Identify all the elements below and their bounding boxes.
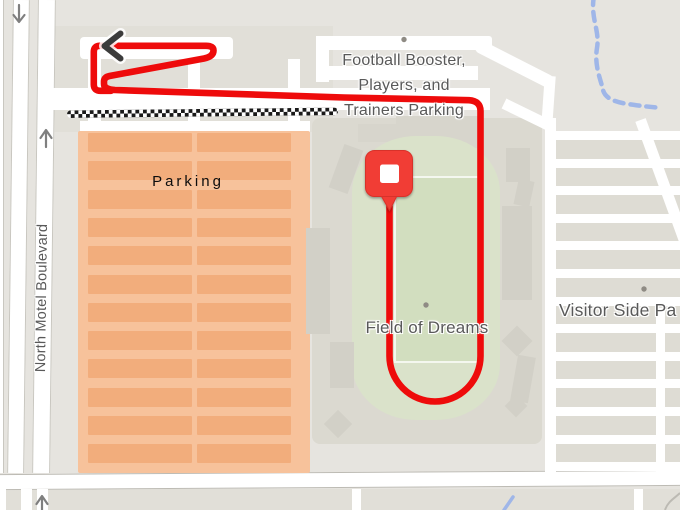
parking-row xyxy=(88,444,192,463)
road-gap xyxy=(21,489,32,510)
parking-row xyxy=(197,303,291,322)
parking-row xyxy=(88,246,192,265)
parking-row xyxy=(88,388,192,407)
visitor-lane-band xyxy=(548,241,680,250)
visitor-parking-label: Visitor Side Pa xyxy=(559,300,676,321)
field-of-dreams-label: Field of Dreams xyxy=(347,318,507,338)
football-parking-label-line2: Players, and xyxy=(294,73,514,98)
parking-label: Parking xyxy=(118,173,258,190)
road-aisle-v1 xyxy=(88,37,101,132)
parking-row xyxy=(197,246,291,265)
marker-square-icon xyxy=(380,165,399,184)
parking-row xyxy=(88,275,192,294)
parking-row xyxy=(197,275,291,294)
road-gap xyxy=(352,489,361,510)
parking-row xyxy=(197,359,291,378)
street-name-label: North Motel Boulevard xyxy=(32,188,51,408)
football-parking-label: Football Booster, Players, and Trainers … xyxy=(294,48,514,123)
stand-southwest xyxy=(330,342,354,388)
parking-row xyxy=(88,218,192,237)
visitor-lane-band xyxy=(548,214,680,223)
parking-row xyxy=(197,218,291,237)
south-blocks xyxy=(0,489,680,510)
road-aisle-top xyxy=(80,37,233,59)
parking-row xyxy=(88,133,192,152)
football-parking-label-line3: Trainers Parking xyxy=(294,98,514,123)
parking-row xyxy=(197,444,291,463)
road-aisle-v2 xyxy=(188,50,200,132)
football-parking-label-line1: Football Booster, xyxy=(294,48,514,73)
road-gap xyxy=(37,489,48,510)
parking-row xyxy=(88,416,192,435)
parking-row xyxy=(88,303,192,322)
road-edge-left xyxy=(0,0,4,473)
parking-row xyxy=(197,388,291,407)
stream-dashed-line xyxy=(593,0,661,108)
parking-row xyxy=(197,190,291,209)
stand-west xyxy=(306,228,330,334)
parking-row xyxy=(197,133,291,152)
parking-row xyxy=(88,190,192,209)
parking-row xyxy=(197,331,291,350)
road-visitor-vertical xyxy=(545,118,556,473)
visitor-lane-band xyxy=(548,131,680,140)
road-gap xyxy=(634,489,643,510)
stand-northeast xyxy=(506,148,530,182)
map-canvas[interactable]: Football Booster, Players, and Trainers … xyxy=(0,0,680,510)
parking-row xyxy=(197,416,291,435)
road-north-motel-southbound xyxy=(7,0,30,473)
stand-east xyxy=(502,206,532,300)
road-gap xyxy=(0,489,6,510)
parking-row xyxy=(88,331,192,350)
road-visitor-gap xyxy=(656,308,665,472)
visitor-lane-band xyxy=(548,269,680,278)
parking-row xyxy=(88,359,192,378)
